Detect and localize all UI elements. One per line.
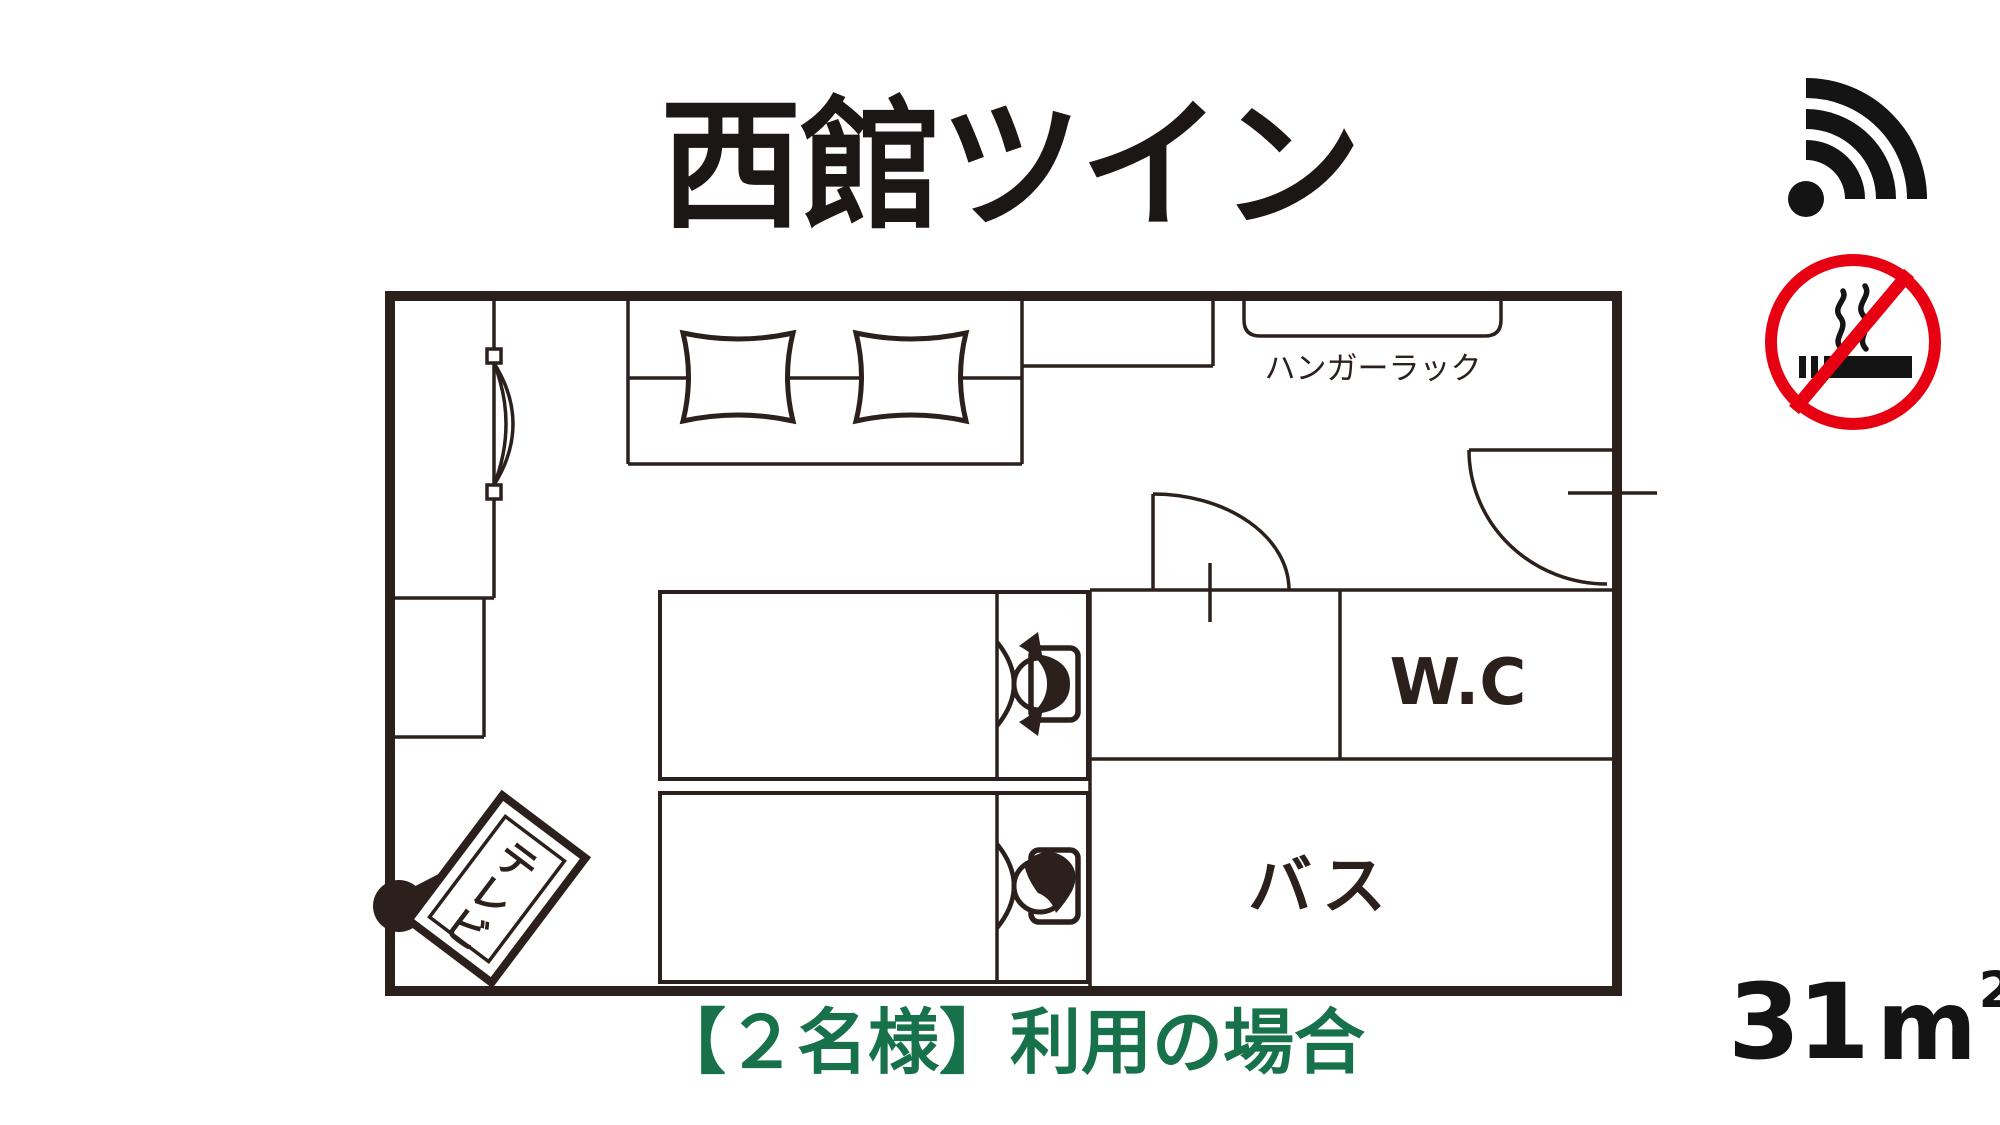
sofa-cushion [856,333,966,421]
area-unit: m2 [1877,982,2000,1070]
room-floorplan-page: 西館ツイン [0,0,2000,1125]
bath-room-label: バス [1248,850,1396,924]
wifi-icon [1788,88,1917,217]
occupancy-caption: 【２名様】利用の場合 [360,1004,1660,1082]
sofa-cushion [683,333,793,421]
wc-room-label: W.C [1390,646,1527,720]
floor-plan: テ レ ビ ハンガーラック W.C バス [0,0,2000,1125]
no-smoking-icon [1771,260,1935,424]
area-sup: 2 [1979,961,2000,1019]
room-area: 31 m2 [1728,975,2000,1071]
bed-1 [660,592,1088,779]
hanger-rack-label: ハンガーラック [1265,351,1482,387]
area-value: 31 [1728,975,1867,1071]
